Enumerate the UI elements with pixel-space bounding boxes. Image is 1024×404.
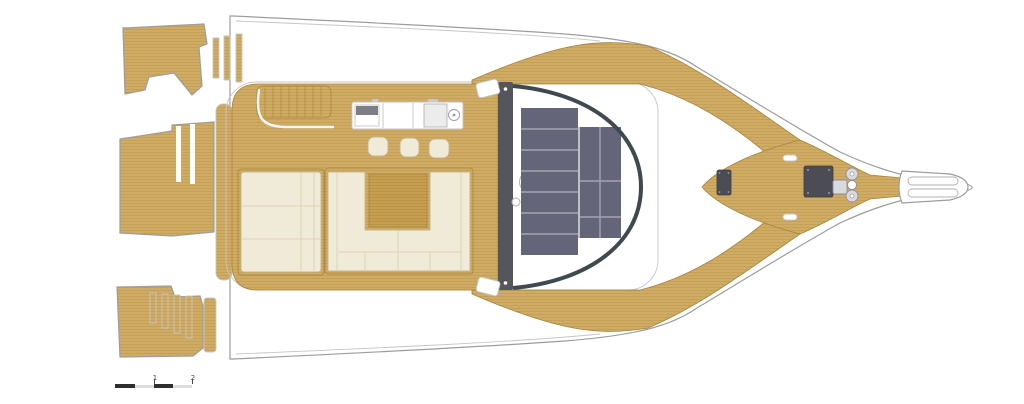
scale-segment-light	[173, 385, 192, 388]
cockpit-table	[369, 174, 427, 227]
fridge	[424, 104, 447, 127]
anchor-roller-slot	[908, 177, 958, 185]
counter-fitting	[428, 99, 438, 102]
frame-fitting	[504, 87, 508, 91]
bar-stool	[429, 139, 449, 158]
swim-platform-port	[123, 24, 207, 95]
deck-hatch-small	[717, 170, 731, 195]
bow-platform	[899, 171, 968, 203]
scale-segment-light	[135, 385, 154, 388]
sunpad	[238, 169, 324, 275]
deck-fitting-pill	[783, 214, 797, 220]
sink-drain	[453, 114, 456, 117]
scale-tick	[192, 379, 193, 384]
bar-stool	[400, 138, 419, 157]
frame-fitting	[504, 281, 508, 285]
chain-stopper	[833, 180, 847, 194]
anchor-locker-hatch	[804, 166, 833, 197]
transom-steps-port	[213, 34, 242, 82]
counter-fitting	[372, 99, 378, 102]
catamaran-deck-plan	[0, 0, 1024, 404]
deck-plan-canvas: 1 2	[0, 0, 1024, 404]
scale-segment-dark	[115, 384, 135, 388]
deck-fitting-pill	[783, 155, 797, 161]
boarding-platform-center	[120, 122, 214, 236]
bar-stools	[368, 137, 449, 158]
platform-step-gap	[176, 126, 181, 182]
cabin-front-frame	[498, 82, 513, 290]
grill-top	[356, 106, 378, 115]
u-sofa	[325, 168, 473, 274]
deck-fitting-small	[512, 198, 520, 206]
transom-step-strip	[216, 104, 232, 280]
scale-bar: 1 2	[115, 374, 205, 394]
scale-segment-dark	[154, 384, 173, 388]
platform-step-gap	[190, 124, 195, 184]
wet-bar-counter	[352, 99, 463, 129]
scale-bar-segments	[115, 384, 192, 388]
glass-panels	[521, 108, 621, 255]
anchor-roller-slot	[908, 189, 958, 197]
bar-stool	[368, 137, 388, 156]
